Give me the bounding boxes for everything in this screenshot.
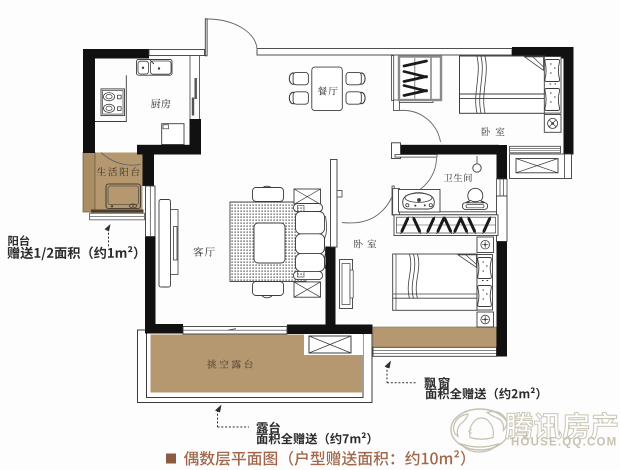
svg-text:HOUSE.QQ.COM: HOUSE.QQ.COM: [511, 437, 617, 449]
